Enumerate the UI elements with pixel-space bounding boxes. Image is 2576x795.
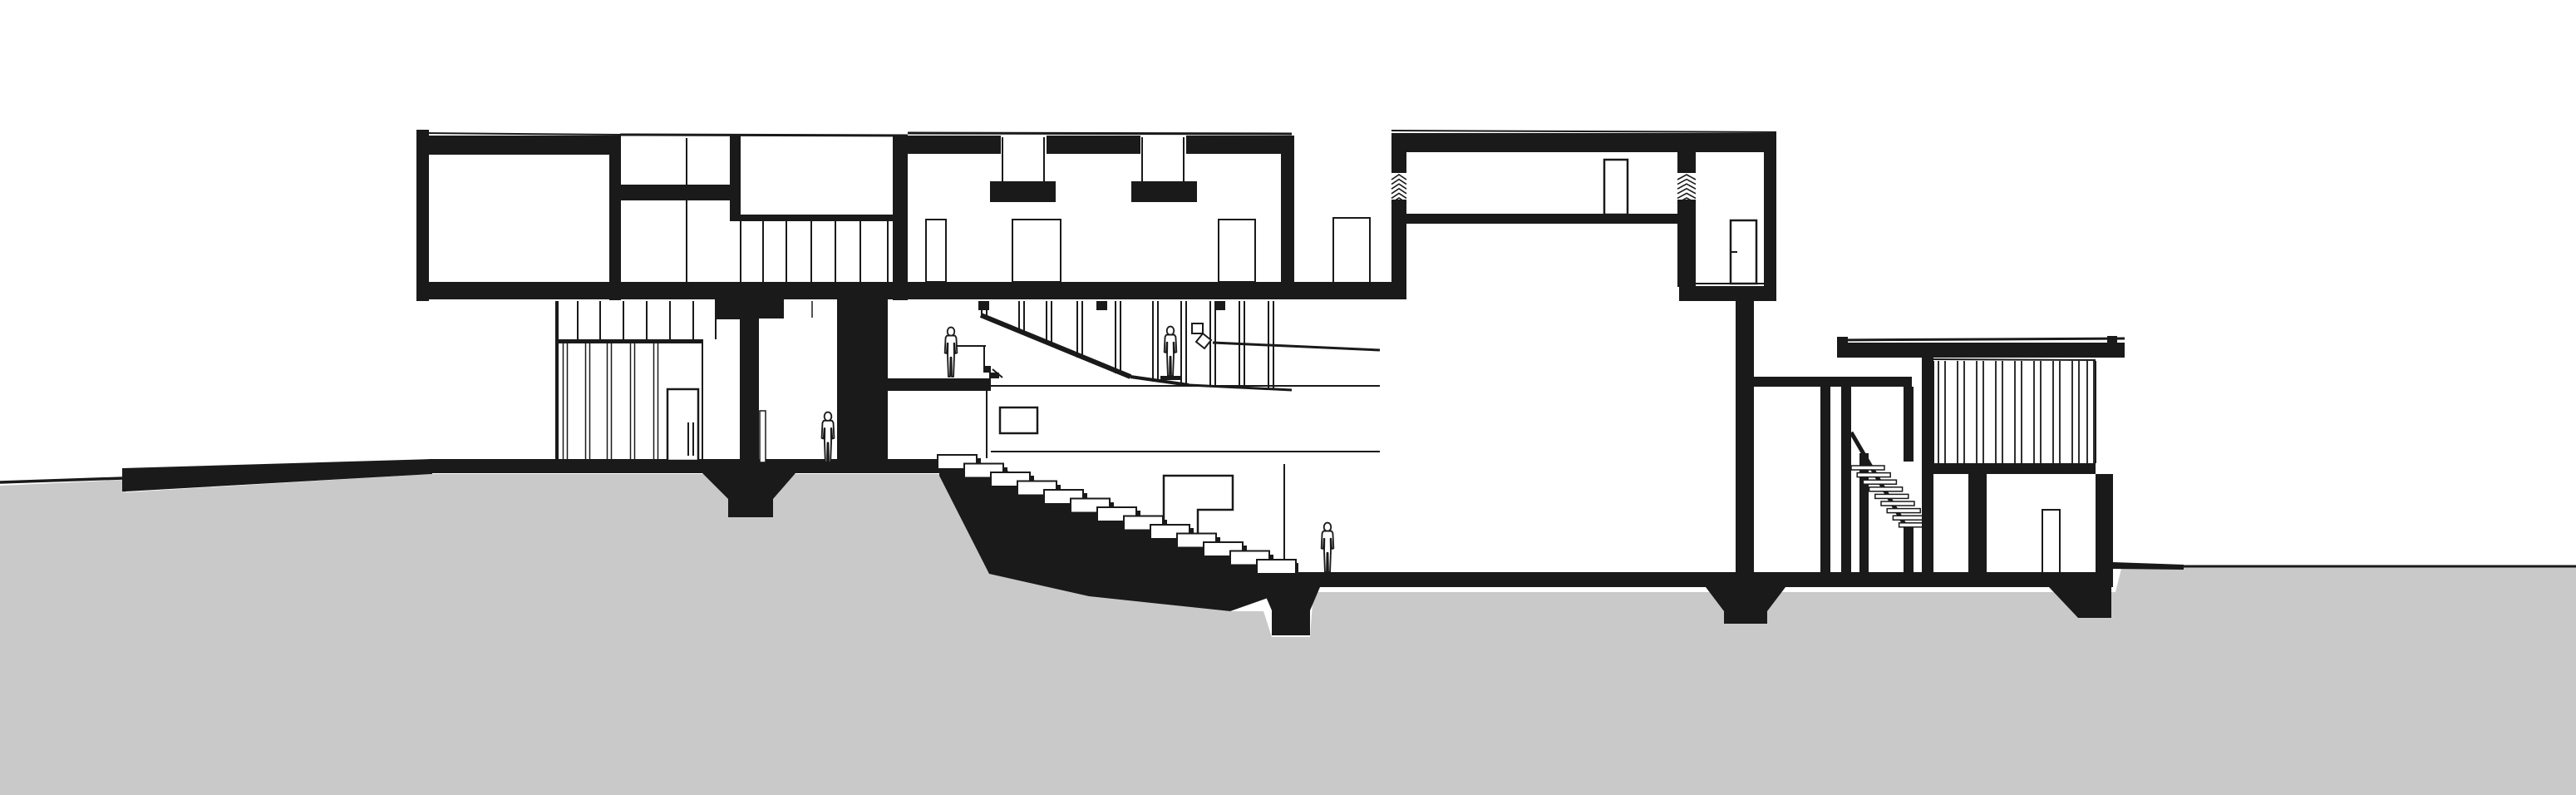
upper-room-door (1333, 218, 1370, 283)
projector-diamond (1196, 333, 1211, 348)
stage-and-annex-floor-slab (1284, 572, 2113, 587)
insulated-wall-e-lower (1391, 200, 1406, 299)
link-stair-wall-upper (1904, 387, 1914, 462)
link-stair-treads-0 (1851, 466, 1884, 470)
clerestory-head-band (555, 339, 702, 343)
right-block-outer-wall (1764, 133, 1776, 301)
roof-slab-mid-c (1186, 136, 1292, 154)
link-stair-treads-4 (1875, 494, 1909, 498)
link-wall-1 (1820, 387, 1830, 574)
terrace-path-edge (122, 468, 126, 491)
link-stair-support (1859, 453, 1869, 574)
hall-right-wall (1736, 301, 1754, 572)
annex-parapet-left (1837, 337, 1848, 358)
roof-slab-mid-a (908, 136, 1001, 154)
figure-base-plinth (1160, 376, 1180, 380)
link-stair-treads-6 (1887, 509, 1920, 513)
auditorium-treads-12 (1257, 560, 1296, 574)
roofline-bay (620, 135, 908, 136)
person-entry-foyer-head (825, 412, 832, 422)
person-hall-glazing (1165, 327, 1177, 376)
plant-room-door (1604, 160, 1628, 215)
link-stair-treads-2 (1863, 480, 1896, 484)
link-stair-wall-lower (1904, 526, 1914, 574)
bay-mezzanine-slab (609, 185, 731, 200)
corridor-left-wall (893, 136, 908, 300)
person-mezzanine-body (945, 336, 958, 377)
entry-door-leaf (760, 411, 766, 462)
corridor-right-wall (1281, 136, 1294, 299)
insulated-wall-f-upper (1677, 152, 1696, 173)
link-stair-treads-1 (1857, 473, 1890, 477)
glazing-transom-a (978, 301, 989, 310)
glazing-sill-diagonal-1 (981, 315, 1130, 377)
person-stage-level (1322, 523, 1334, 572)
person-stage-level-head (1324, 523, 1332, 531)
roofline-mid (908, 133, 1292, 134)
right-block-bottom-box (1679, 286, 1776, 301)
gallery-right-wall (609, 136, 621, 300)
person-hall-glazing-head (1167, 327, 1175, 335)
annex-lower-door (2042, 510, 2060, 573)
person-stage-level-body (1322, 531, 1334, 572)
entry-partition-wall (740, 298, 759, 464)
section-drawing (0, 0, 2576, 795)
person-entry-foyer (822, 412, 835, 462)
annex-right-wall-lower (2096, 474, 2113, 574)
mezzanine-nosing-step-1 (983, 366, 991, 373)
link-stair-treads-5 (1881, 501, 1914, 506)
corridor-door-3 (1219, 220, 1255, 282)
link-stair-treads-7 (1893, 516, 1926, 520)
glazing-transom-b (1096, 301, 1107, 310)
corridor-door-1 (926, 220, 946, 282)
architectural-section-canvas (0, 0, 2576, 795)
insulated-wall-e-upper (1391, 152, 1406, 173)
link-stair-treads-3 (1869, 487, 1903, 491)
roofline-gallery (418, 133, 620, 135)
skylight-sill-box-a (990, 181, 1056, 202)
insulated-wall-f-lower (1677, 200, 1696, 287)
hall-picture-frame (1000, 407, 1037, 433)
roofline-right-block (1391, 131, 1776, 132)
skylight-sill-box-b (1131, 181, 1197, 202)
annex-mid-slab (1928, 463, 2096, 474)
hall-far-raked-line (1213, 343, 1380, 350)
foyer-door-header (759, 298, 784, 318)
bay-right-wall (730, 136, 741, 221)
plant-room-floor-slab (1406, 214, 1677, 224)
annex-parapet-right (2107, 336, 2117, 358)
annex-roof-slab (1837, 343, 2125, 358)
corridor-glazing-head (741, 215, 903, 221)
core-wall (837, 298, 888, 462)
person-mezzanine-head (948, 328, 955, 336)
terrain-line-right-thick (2113, 562, 2184, 570)
link-roof-slab (1754, 377, 1912, 387)
roof-slab-mid-b (1047, 136, 1140, 154)
annex-glazing-head-rail (1933, 359, 2096, 360)
link-wall-2 (1841, 387, 1851, 574)
corridor-door-2 (1012, 220, 1061, 282)
parapet-wall-left (416, 130, 429, 301)
roof-slab-right-block (1391, 133, 1776, 152)
service-box-soffit (715, 298, 740, 319)
roof-slab-gallery (416, 136, 620, 155)
facade-corner-post (555, 301, 559, 462)
annex-lower-wall (1968, 474, 1987, 574)
annex-roofline (1837, 338, 2125, 340)
person-entry-foyer-body (822, 421, 835, 462)
person-hall-glazing-body (1165, 335, 1177, 376)
person-mezzanine (945, 328, 958, 377)
projector-box (1192, 323, 1203, 333)
